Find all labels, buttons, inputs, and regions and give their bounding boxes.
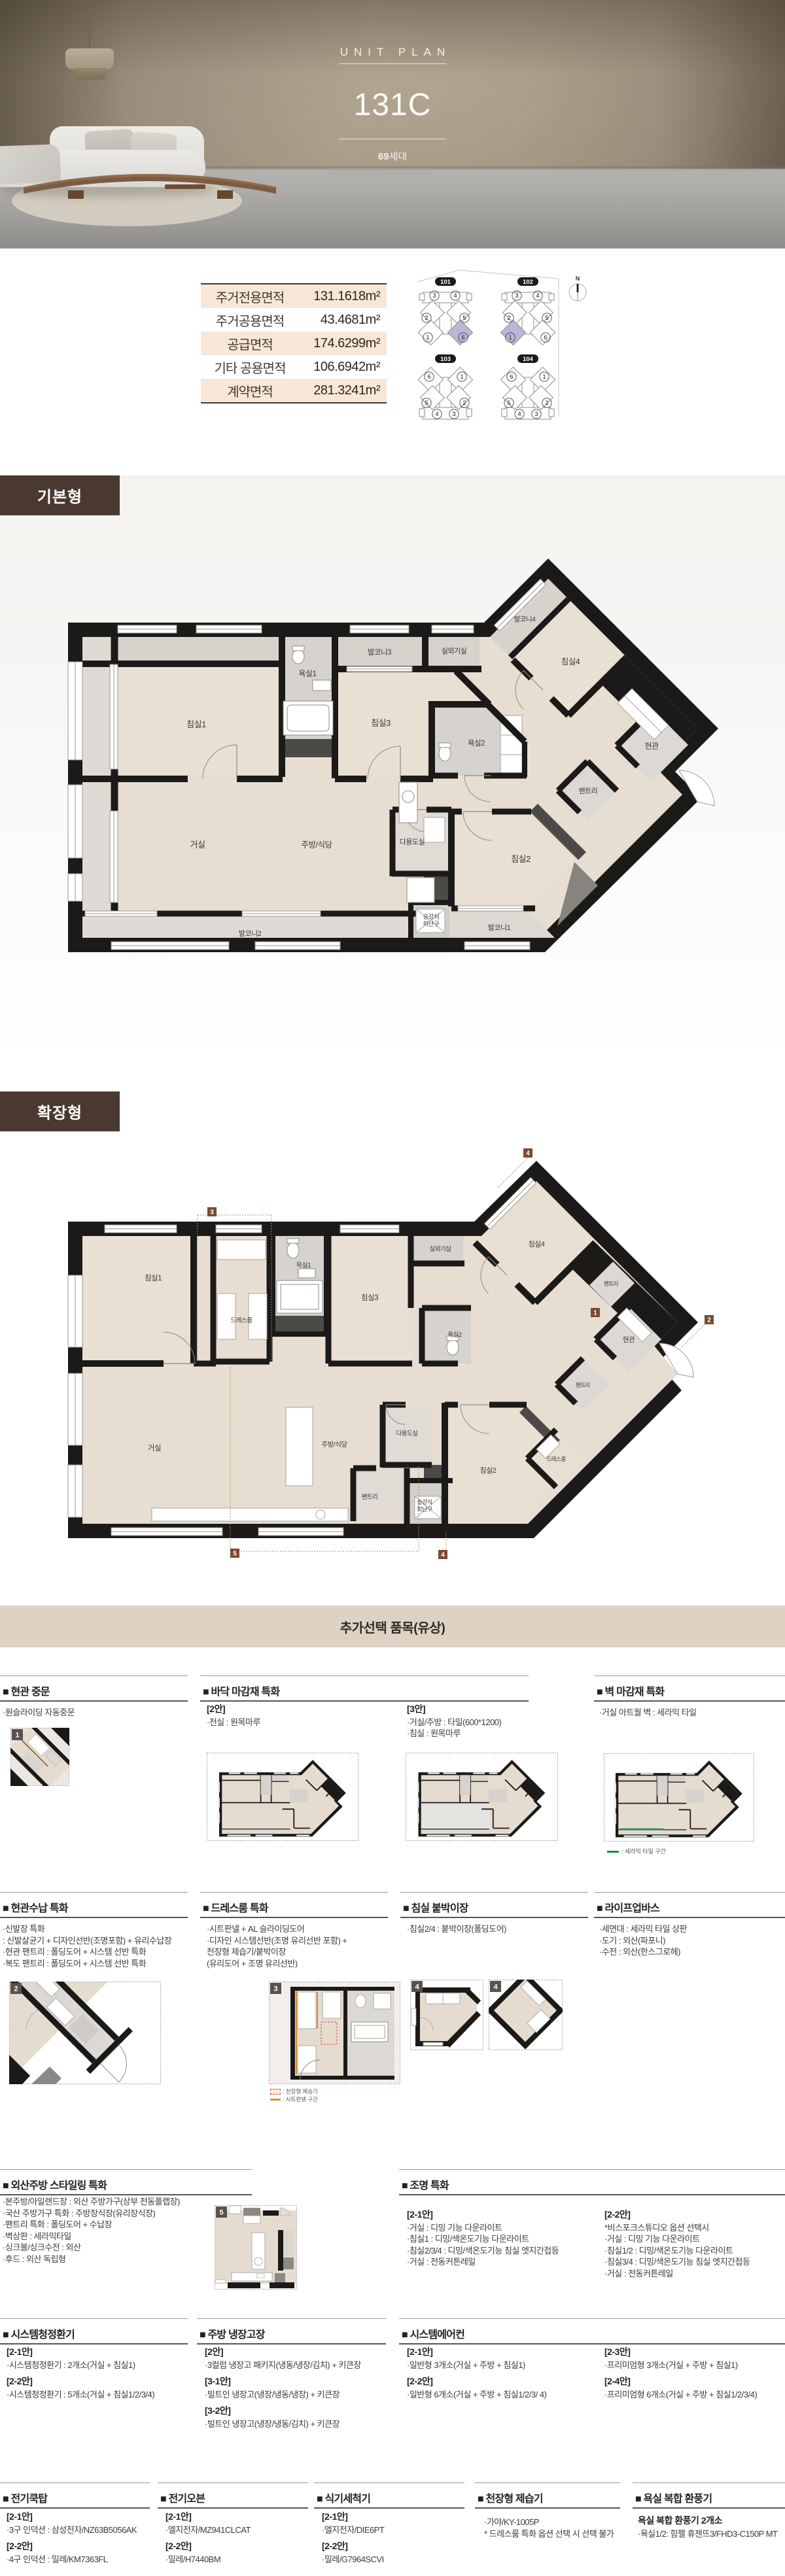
svg-text:현관: 현관 [623,1336,635,1344]
svg-text:욕실1: 욕실1 [296,1262,311,1269]
svg-text:침실1: 침실1 [145,1274,162,1282]
svg-text:승강식: 승강식 [417,1499,432,1505]
svg-text:피난구: 피난구 [417,1506,432,1513]
svg-text:팬트리: 팬트리 [576,1382,590,1388]
svg-text:드레스룸: 드레스룸 [231,1317,253,1324]
svg-text:주방/식당: 주방/식당 [321,1441,347,1449]
svg-text:욕실2: 욕실2 [447,1331,461,1339]
svg-text:거실: 거실 [148,1444,161,1452]
svg-text:2: 2 [14,1985,18,1993]
svg-text:5: 5 [219,2209,223,2217]
svg-text:5: 5 [233,1551,237,1558]
svg-text:2: 2 [707,1317,711,1324]
svg-text:침실4: 침실4 [529,1240,545,1248]
svg-text:4: 4 [493,1984,498,1991]
svg-text:드레스룸: 드레스룸 [546,1456,566,1462]
svg-text:실외기실: 실외기실 [430,1245,451,1253]
svg-text:3: 3 [210,1209,214,1216]
svg-text:팬트리: 팬트리 [604,1280,618,1287]
svg-text:1: 1 [593,1310,597,1317]
svg-text:침실2: 침실2 [480,1466,497,1475]
svg-text:4: 4 [415,1984,419,1991]
svg-text:다용도실: 다용도실 [396,1430,418,1437]
svg-text:침실3: 침실3 [361,1294,378,1302]
svg-text:4: 4 [441,1552,445,1559]
svg-text:팬트리: 팬트리 [362,1494,378,1501]
svg-text:4: 4 [526,1150,530,1158]
svg-text:3: 3 [273,1985,277,1993]
svg-text:1: 1 [15,1732,19,1740]
